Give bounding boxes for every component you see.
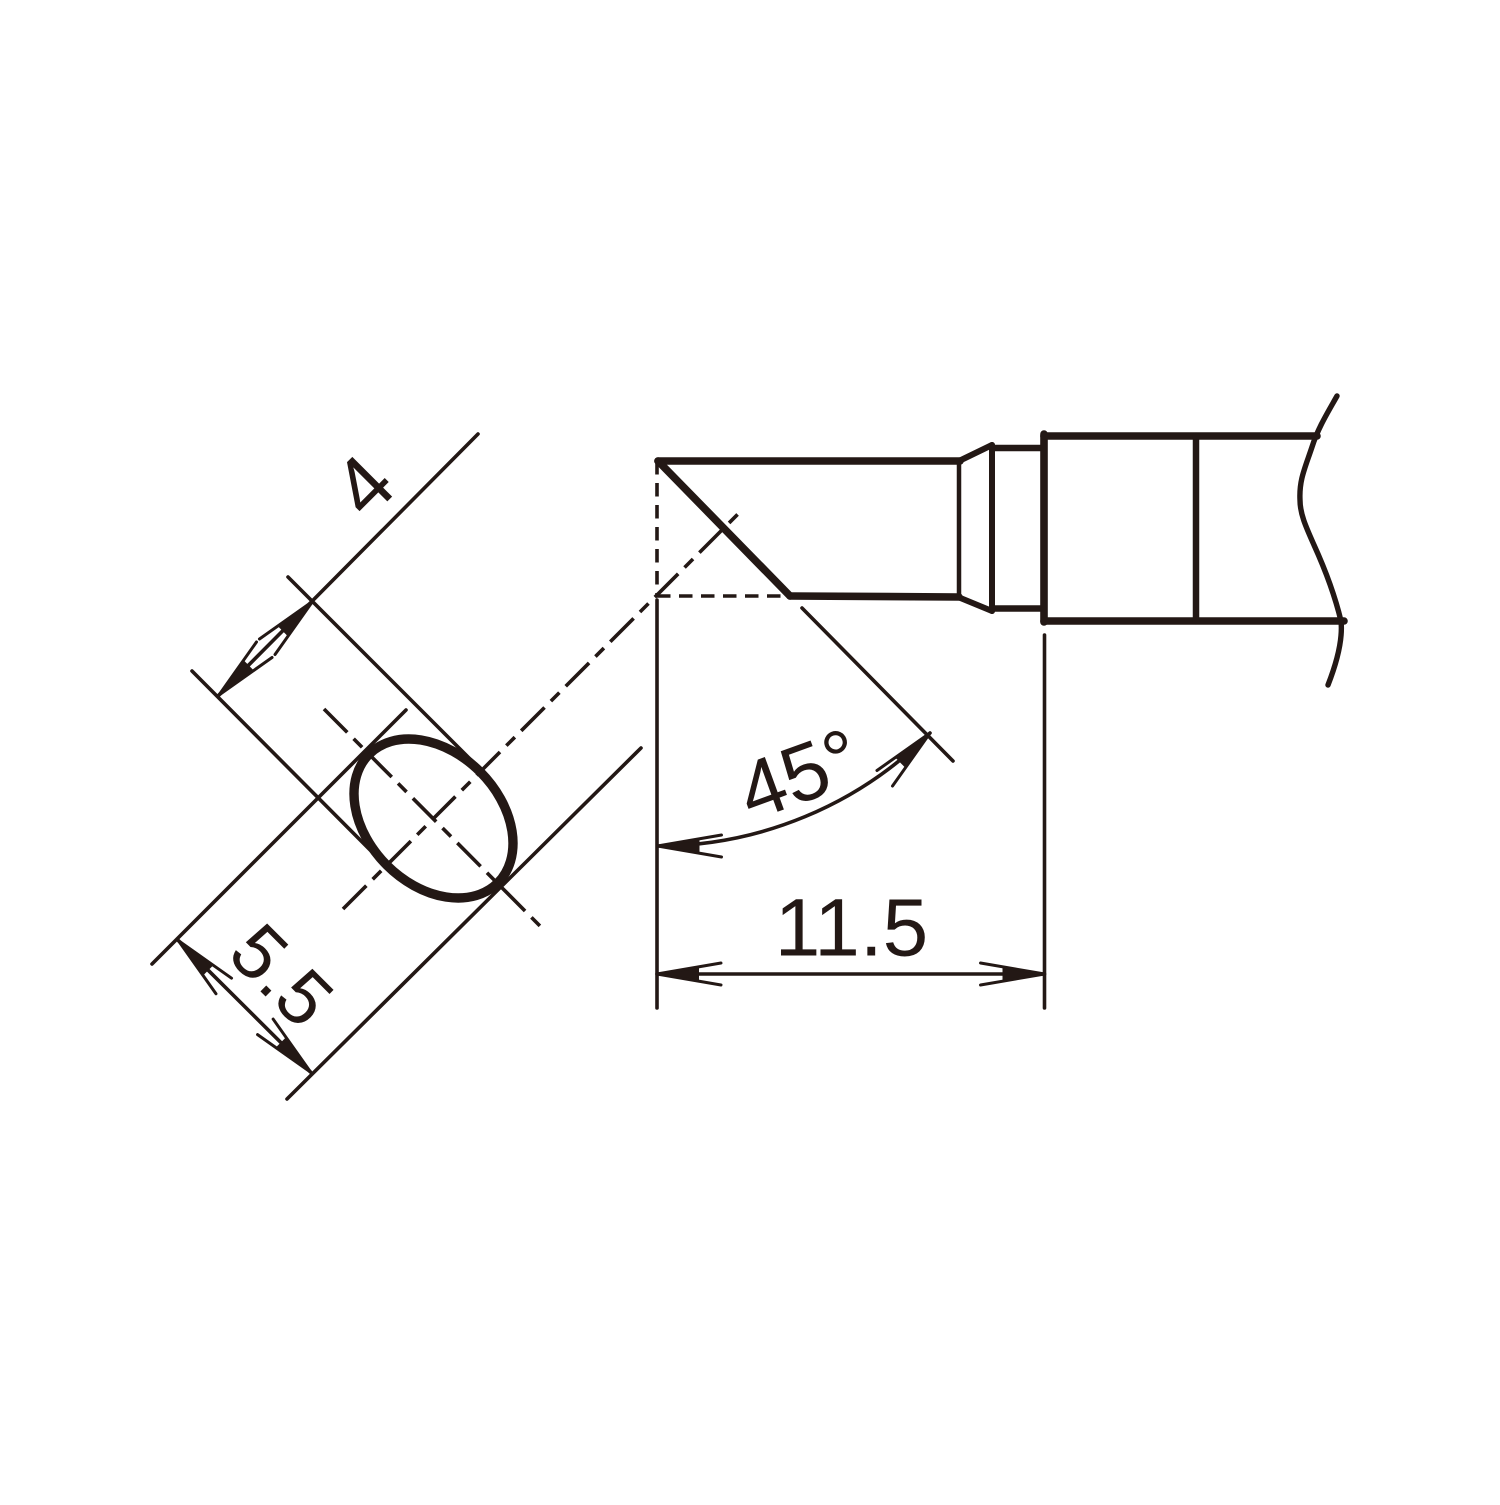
svg-text:11.5: 11.5 (775, 883, 929, 974)
